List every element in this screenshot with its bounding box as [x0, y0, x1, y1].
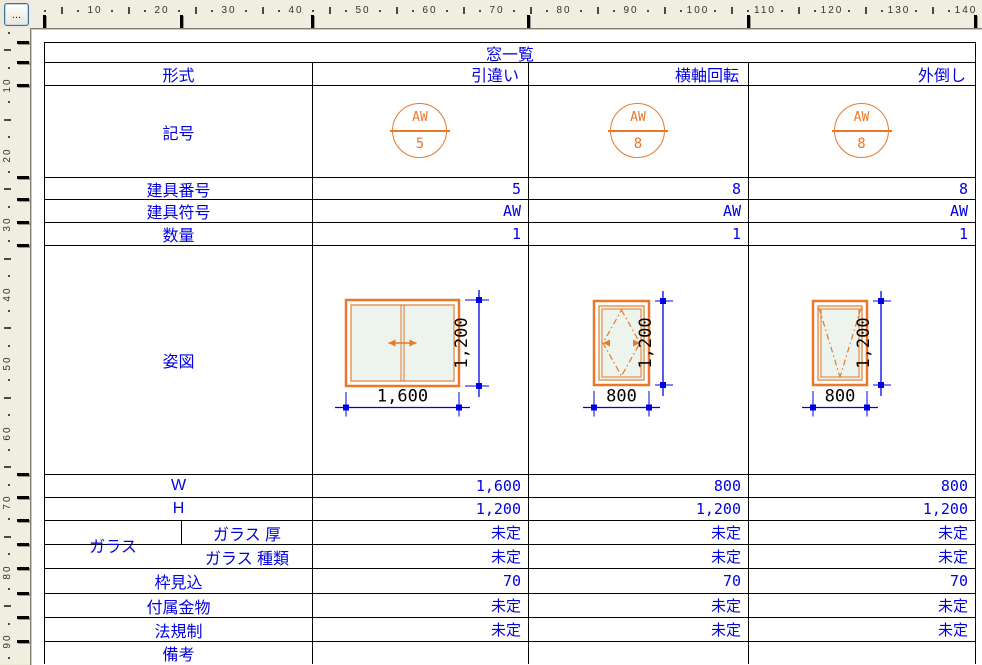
left-ruler-number: 40	[0, 282, 19, 306]
ruler-tick	[4, 397, 11, 399]
row-guide-marker	[17, 221, 29, 224]
ruler-tick	[128, 7, 130, 14]
row-guide-marker	[17, 519, 29, 522]
ruler-tick	[4, 327, 11, 329]
ruler-tick	[4, 258, 11, 260]
left-ruler-number: 50	[0, 351, 19, 375]
top-ruler-number: 130	[885, 3, 913, 17]
ruler-tick	[345, 10, 347, 12]
ruler-tick	[278, 10, 280, 12]
ruler-tick	[412, 10, 414, 12]
row-guide-marker	[17, 61, 29, 64]
top-ruler-number: 30	[215, 3, 243, 17]
left-ruler-number: 70	[0, 490, 19, 514]
column-guide-marker	[311, 15, 314, 28]
ruler-tick	[8, 518, 10, 520]
ruler-tick	[44, 10, 46, 12]
ruler-tick	[530, 7, 532, 14]
row-guide-marker	[17, 496, 29, 499]
ruler-tick	[8, 310, 10, 312]
ruler-tick	[8, 449, 10, 451]
horizontal-ruler: 102030405060708090100110120130140	[30, 0, 982, 28]
ruler-tick	[714, 10, 716, 12]
ruler-tick	[8, 553, 10, 555]
ruler-tick	[77, 10, 79, 12]
ruler-tick	[178, 10, 180, 12]
ruler-tick	[8, 379, 10, 381]
ruler-tick	[8, 67, 10, 69]
row-guide-marker	[17, 84, 29, 87]
ruler-tick	[8, 101, 10, 103]
left-ruler-number: 60	[0, 421, 19, 445]
top-ruler-number: 70	[483, 3, 511, 17]
ruler-tick	[948, 10, 950, 12]
ruler-tick	[865, 7, 867, 14]
ruler-tick	[8, 171, 10, 173]
ruler-tick	[4, 188, 11, 190]
row-guide-marker	[17, 176, 29, 179]
column-guide-marker	[180, 15, 183, 28]
row-guide-marker	[17, 244, 29, 247]
ruler-tick	[597, 7, 599, 14]
ruler-tick	[329, 7, 331, 14]
ruler-tick	[446, 10, 448, 12]
top-ruler-number: 100	[684, 3, 712, 17]
ruler-tick	[245, 10, 247, 12]
ruler-tick	[4, 49, 11, 51]
column-guide-marker	[43, 15, 46, 28]
ruler-tick	[8, 136, 10, 138]
ruler-tick	[396, 7, 398, 14]
row-guide-marker	[17, 473, 29, 476]
ruler-tick	[747, 10, 749, 12]
ruler-tick	[4, 605, 11, 607]
top-ruler-number: 10	[81, 3, 109, 17]
row-guide-marker	[17, 640, 29, 643]
ruler-tick	[8, 206, 10, 208]
top-ruler-number: 120	[818, 3, 846, 17]
ruler-tick	[513, 10, 515, 12]
ruler-tick	[479, 10, 481, 12]
column-guide-marker	[747, 15, 750, 28]
ruler-tick	[312, 10, 314, 12]
top-ruler-number: 80	[550, 3, 578, 17]
ruler-tick	[144, 10, 146, 12]
ruler-tick	[781, 10, 783, 12]
left-ruler-number: 20	[0, 143, 19, 167]
ruler-tick	[4, 119, 11, 121]
ruler-tick	[932, 7, 934, 14]
ruler-tick	[61, 7, 63, 14]
ruler-tick	[8, 484, 10, 486]
top-ruler-number: 90	[617, 3, 645, 17]
ruler-options-button[interactable]: ...	[4, 3, 29, 26]
left-ruler-number: 80	[0, 560, 19, 584]
vertical-ruler: 102030405060708090	[0, 28, 30, 664]
ruler-tick	[798, 7, 800, 14]
ruler-tick	[881, 10, 883, 12]
ruler-tick	[8, 414, 10, 416]
top-ruler-number: 60	[416, 3, 444, 17]
ruler-tick	[8, 240, 10, 242]
column-guide-marker	[974, 15, 977, 28]
ruler-tick	[546, 10, 548, 12]
ruler-tick	[848, 10, 850, 12]
top-ruler-number: 40	[282, 3, 310, 17]
row-guide-marker	[17, 198, 29, 201]
ruler-tick	[463, 7, 465, 14]
top-ruler-number: 110	[751, 3, 779, 17]
ruler-tick	[4, 536, 11, 538]
ruler-tick	[262, 7, 264, 14]
ruler-tick	[8, 588, 10, 590]
column-guide-marker	[527, 15, 530, 28]
ruler-tick	[580, 10, 582, 12]
ruler-tick	[647, 10, 649, 12]
row-guide-marker	[17, 592, 29, 595]
row-guide-marker	[17, 41, 29, 44]
ruler-tick	[915, 10, 917, 12]
ruler-tick	[814, 10, 816, 12]
row-guide-marker	[17, 543, 29, 546]
ruler-tick	[8, 275, 10, 277]
ruler-tick	[195, 7, 197, 14]
ruler-tick	[8, 32, 10, 34]
ruler-tick	[111, 10, 113, 12]
ruler-tick	[680, 10, 682, 12]
ruler-tick	[379, 10, 381, 12]
left-ruler-number: 30	[0, 212, 19, 236]
top-ruler-number: 20	[148, 3, 176, 17]
ruler-tick	[4, 466, 11, 468]
ruler-tick	[211, 10, 213, 12]
top-ruler-number: 50	[349, 3, 377, 17]
ruler-tick	[8, 345, 10, 347]
ruler-tick	[613, 10, 615, 12]
row-guide-marker	[17, 616, 29, 619]
ruler-tick	[8, 623, 10, 625]
drawing-canvas[interactable]	[30, 28, 982, 665]
ruler-tick	[731, 7, 733, 14]
ruler-tick	[664, 7, 666, 14]
row-guide-marker	[17, 567, 29, 570]
ruler-tick	[8, 657, 10, 659]
